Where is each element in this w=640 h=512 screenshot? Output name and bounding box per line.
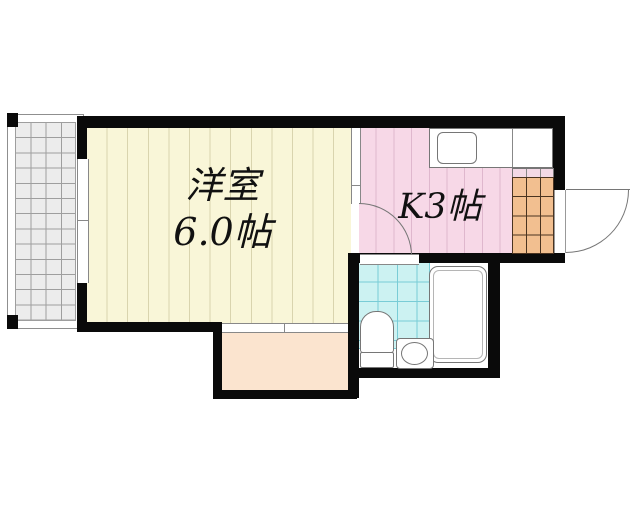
kitchen-label: K3帖 <box>380 178 500 229</box>
balcony-corner-post-bottom <box>7 315 18 329</box>
kitchen-partition <box>351 128 361 204</box>
bathtub <box>429 266 487 363</box>
toilet <box>360 311 394 368</box>
wall-storage-bottom <box>213 390 357 399</box>
wall-left-upper <box>77 116 87 161</box>
floorplan-canvas: 洋室 6.0帖 K3帖 <box>0 0 640 512</box>
storage-area-floor <box>222 331 348 390</box>
window-tick <box>78 220 88 221</box>
step-divider <box>540 169 541 177</box>
entrance-door-swing-arc <box>566 190 629 253</box>
wall-top <box>77 116 565 128</box>
counter-divider <box>512 129 513 167</box>
window-tick <box>284 324 285 332</box>
basin-bowl <box>401 342 428 365</box>
kitchen-sink <box>437 132 477 164</box>
wall-right-upper <box>553 116 565 192</box>
sliding-window-balcony <box>77 159 89 283</box>
wall-bath-right <box>488 253 500 378</box>
balcony-corner-post-top <box>7 113 18 127</box>
toilet-bowl <box>360 311 394 353</box>
bathtub-rim <box>433 270 483 359</box>
western-room-name: 洋室 <box>105 162 340 209</box>
bathroom-door <box>360 254 419 265</box>
wash-basin <box>396 338 434 369</box>
entrance-threshold <box>554 190 566 253</box>
sliding-window-storage <box>222 323 348 333</box>
partition-tick <box>352 185 360 186</box>
step-divider <box>526 169 527 177</box>
western-room-label: 洋室 6.0帖 <box>105 162 340 256</box>
entrance-tile <box>512 177 554 254</box>
wall-room-bottom <box>77 322 222 332</box>
wall-bath-bottom <box>348 368 500 378</box>
toilet-base <box>360 352 394 368</box>
wall-storage-left <box>213 322 222 398</box>
western-room-size: 6.0帖 <box>105 209 340 256</box>
balcony-deck-grid <box>15 122 76 321</box>
